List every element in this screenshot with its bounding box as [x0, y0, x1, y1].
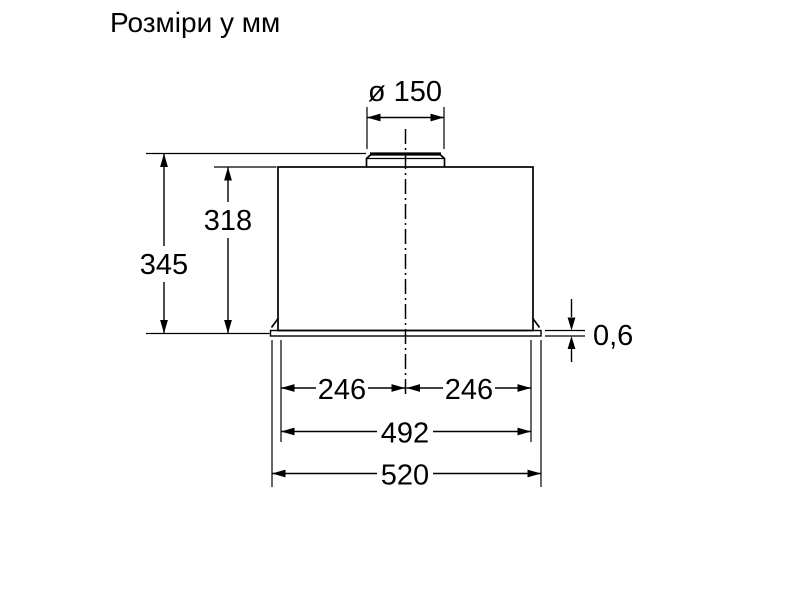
arrowhead-right: [392, 384, 406, 392]
arrowhead-up: [160, 154, 168, 168]
dim-center-to-right: 246: [407, 374, 532, 406]
dim-body-height: 318: [204, 167, 277, 334]
arrowhead-down: [224, 320, 232, 334]
center-to-right-label: 246: [445, 374, 493, 406]
dimension-diagram-page: Розміри у мм ø 150: [0, 0, 800, 600]
arrowhead-up: [568, 336, 576, 349]
overall-height-label: 345: [140, 249, 188, 281]
dim-bottom-panel-thickness: 0,6: [545, 299, 633, 362]
center-to-left-label: 246: [318, 374, 366, 406]
bottom-panel-thickness-label: 0,6: [593, 320, 633, 352]
arrowhead-right: [518, 428, 532, 436]
arrowhead-right: [431, 114, 445, 122]
body-width-label: 492: [381, 418, 429, 450]
duct-diameter-label: ø 150: [368, 76, 442, 108]
arrowhead-left: [367, 114, 381, 122]
dim-center-to-left: 246: [281, 374, 405, 406]
arrowhead-right: [528, 470, 542, 478]
arrowhead-down: [160, 320, 168, 334]
arrowhead-left: [407, 384, 421, 392]
body-height-label: 318: [204, 205, 252, 237]
arrowhead-up: [224, 167, 232, 181]
dim-overall-width: 520: [272, 460, 541, 492]
dim-overall-height: 345: [140, 154, 366, 334]
overall-width-label: 520: [381, 460, 429, 492]
dim-body-width: 492: [281, 418, 531, 450]
arrowhead-left: [281, 428, 295, 436]
hood-dimension-drawing: ø 150 345 318 0: [0, 0, 800, 600]
arrowhead-down: [568, 318, 576, 331]
arrowhead-left: [281, 384, 295, 392]
arrowhead-right: [518, 384, 532, 392]
arrowhead-left: [272, 470, 286, 478]
